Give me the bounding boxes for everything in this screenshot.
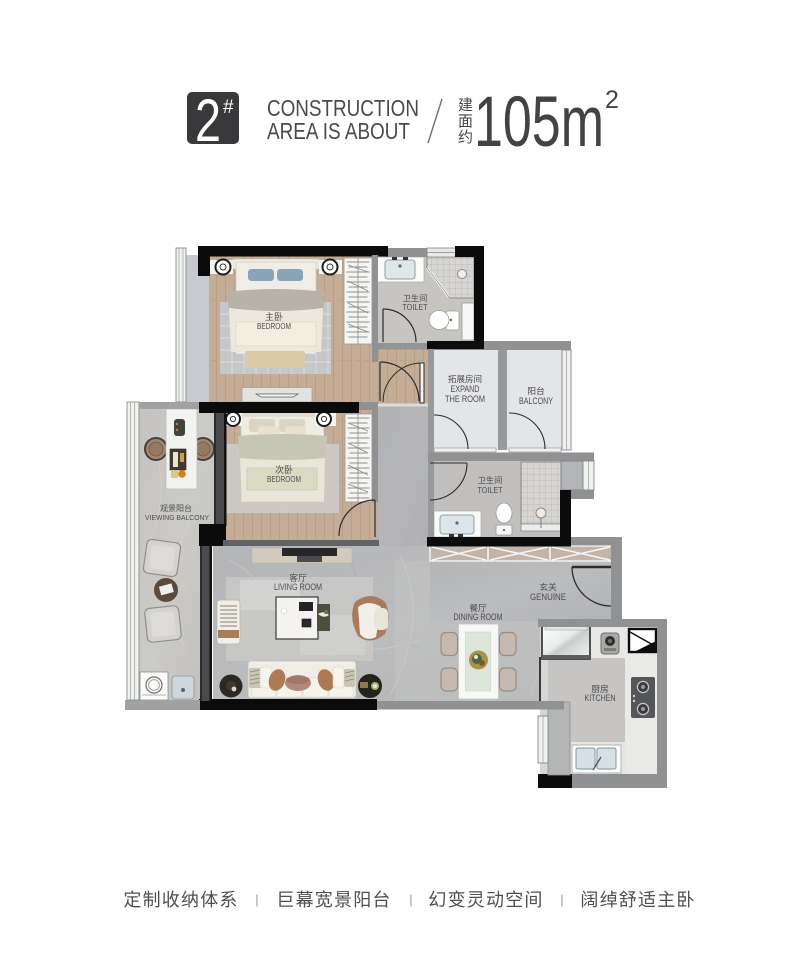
- svg-text:|: |: [409, 892, 412, 907]
- svg-text:阔绰舒适主卧: 阔绰舒适主卧: [580, 890, 695, 910]
- svg-text:|: |: [255, 892, 258, 907]
- svg-text:AREA IS ABOUT: AREA IS ABOUT: [267, 118, 410, 144]
- svg-text:BALCONY: BALCONY: [519, 396, 553, 406]
- svg-text:拓展房间: 拓展房间: [448, 374, 482, 384]
- svg-text:THE ROOM: THE ROOM: [445, 394, 485, 404]
- svg-text:2: 2: [605, 86, 619, 114]
- svg-text:VIEWING BALCONY: VIEWING BALCONY: [145, 513, 209, 522]
- svg-text:卫生间: 卫生间: [403, 293, 428, 303]
- svg-text:EXPAND: EXPAND: [451, 384, 480, 394]
- svg-text:GENUINE: GENUINE: [530, 592, 566, 602]
- svg-text:|: |: [560, 892, 563, 907]
- svg-text:LIVING ROOM: LIVING ROOM: [274, 582, 322, 592]
- svg-text:卫生间: 卫生间: [478, 475, 503, 485]
- svg-text:定制收纳体系: 定制收纳体系: [123, 890, 238, 910]
- svg-text:约: 约: [458, 129, 473, 146]
- svg-text:建: 建: [458, 97, 473, 114]
- svg-text:面: 面: [458, 113, 473, 130]
- svg-text:幻变灵动空间: 幻变灵动空间: [428, 890, 543, 910]
- svg-text:#: #: [223, 97, 234, 118]
- svg-text:105m: 105m: [474, 83, 604, 162]
- svg-text:BEDROOM: BEDROOM: [257, 321, 291, 331]
- svg-text:BEDROOM: BEDROOM: [267, 474, 301, 484]
- svg-text:2: 2: [195, 87, 221, 154]
- svg-text:巨幕宽景阳台: 巨幕宽景阳台: [276, 890, 391, 910]
- svg-text:玄关: 玄关: [539, 581, 557, 592]
- svg-text:TOILET: TOILET: [403, 303, 428, 312]
- svg-text:阳台: 阳台: [527, 385, 545, 396]
- svg-text:TOILET: TOILET: [478, 486, 503, 495]
- svg-text:观景阳台: 观景阳台: [160, 503, 192, 513]
- svg-text:KITCHEN: KITCHEN: [585, 693, 616, 703]
- svg-text:DINING ROOM: DINING ROOM: [454, 612, 503, 622]
